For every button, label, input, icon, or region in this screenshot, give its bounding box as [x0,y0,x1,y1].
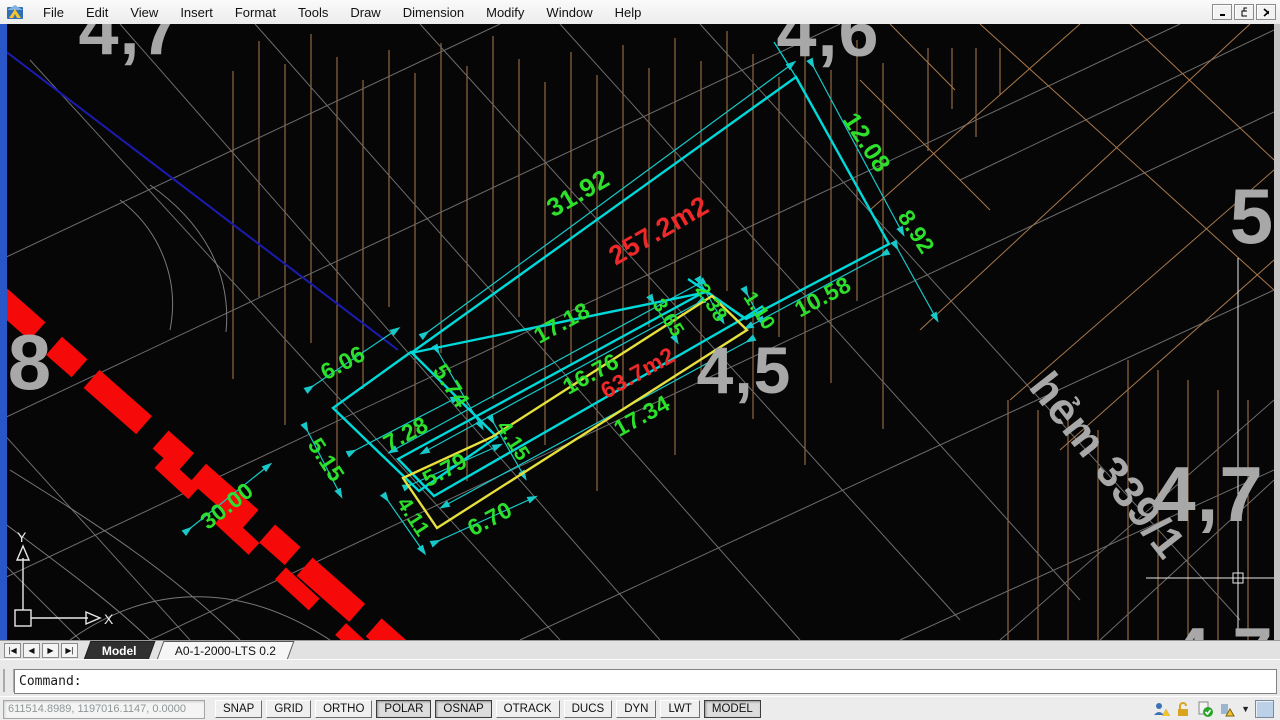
command-prompt: Command: [15,674,82,689]
autocad-window: FileEditViewInsertFormatToolsDrawDimensi… [0,0,1280,720]
menu-insert[interactable]: Insert [169,2,224,23]
first-tab-icon[interactable]: |◀ [4,643,21,658]
tab-navigation: |◀◀▶▶| [3,643,79,658]
annotation-warning-icon[interactable] [1218,701,1236,718]
command-window: Command: [0,659,1280,697]
toggle-ortho[interactable]: ORTHO [315,700,372,718]
cad-geometry: Y X [7,24,1274,640]
standards-warning-icon[interactable] [1152,701,1170,718]
drawing-canvas[interactable]: Y X 31.92257.2m212.088.9210.5817.1816.76… [7,24,1274,640]
minimize-button[interactable] [1212,4,1232,20]
toggle-model[interactable]: MODEL [704,700,761,718]
close-button[interactable] [1256,4,1276,20]
svg-text:Y: Y [17,529,27,545]
menu-dimension[interactable]: Dimension [392,2,475,23]
menu-window[interactable]: Window [535,2,603,23]
drafting-toggles: SNAPGRIDORTHOPOLAROSNAPOTRACKDUCSDYNLWTM… [215,700,761,718]
toggle-ducs[interactable]: DUCS [564,700,613,718]
tray-menu-arrow-icon[interactable]: ▼ [1241,704,1250,714]
minimize-icon [1219,8,1225,17]
toggle-lwt[interactable]: LWT [660,700,699,718]
menu-modify[interactable]: Modify [475,2,535,23]
toggle-dyn[interactable]: DYN [616,700,656,718]
menu-tools[interactable]: Tools [287,2,339,23]
menu-format[interactable]: Format [224,2,287,23]
trusted-dwg-icon[interactable] [1196,701,1214,718]
layout-tab-bar: |◀◀▶▶| Model A0-1-2000-LTS 0.2 [0,640,1280,660]
menu-view[interactable]: View [119,2,169,23]
toggle-osnap[interactable]: OSNAP [435,700,491,718]
svg-text:X: X [104,611,114,627]
autocad-app-icon [6,4,24,20]
menu-edit[interactable]: Edit [75,2,119,23]
toggle-otrack[interactable]: OTRACK [496,700,560,718]
coordinate-readout[interactable]: 611514.8989, 1197016.1147, 0.0000 [3,700,205,719]
menu-draw[interactable]: Draw [339,2,391,23]
toggle-snap[interactable]: SNAP [215,700,262,718]
ui-lock-icon[interactable] [1174,701,1192,718]
prev-tab-icon[interactable]: ◀ [23,643,40,658]
clean-screen-button[interactable] [1255,700,1274,718]
last-tab-icon[interactable]: ▶| [61,643,78,658]
status-tray: ▼ [1152,700,1280,718]
restore-icon [1241,7,1247,17]
menu-items: FileEditViewInsertFormatToolsDrawDimensi… [32,2,652,23]
window-controls [1212,4,1280,20]
command-input[interactable]: Command: [14,669,1277,694]
close-icon [1263,8,1269,17]
menu-bar: FileEditViewInsertFormatToolsDrawDimensi… [0,0,1280,25]
toggle-grid[interactable]: GRID [266,700,311,718]
status-bar: 611514.8989, 1197016.1147, 0.0000 SNAPGR… [0,696,1280,720]
tab-model[interactable]: Model [84,641,156,660]
menu-file[interactable]: File [32,2,75,23]
tab-layout-a0[interactable]: A0-1-2000-LTS 0.2 [156,641,294,660]
toggle-polar[interactable]: POLAR [376,700,431,718]
next-tab-icon[interactable]: ▶ [42,643,59,658]
restore-button[interactable] [1234,4,1254,20]
canvas-right-border [1274,24,1280,640]
canvas-left-border [0,24,7,640]
menu-help[interactable]: Help [604,2,653,23]
